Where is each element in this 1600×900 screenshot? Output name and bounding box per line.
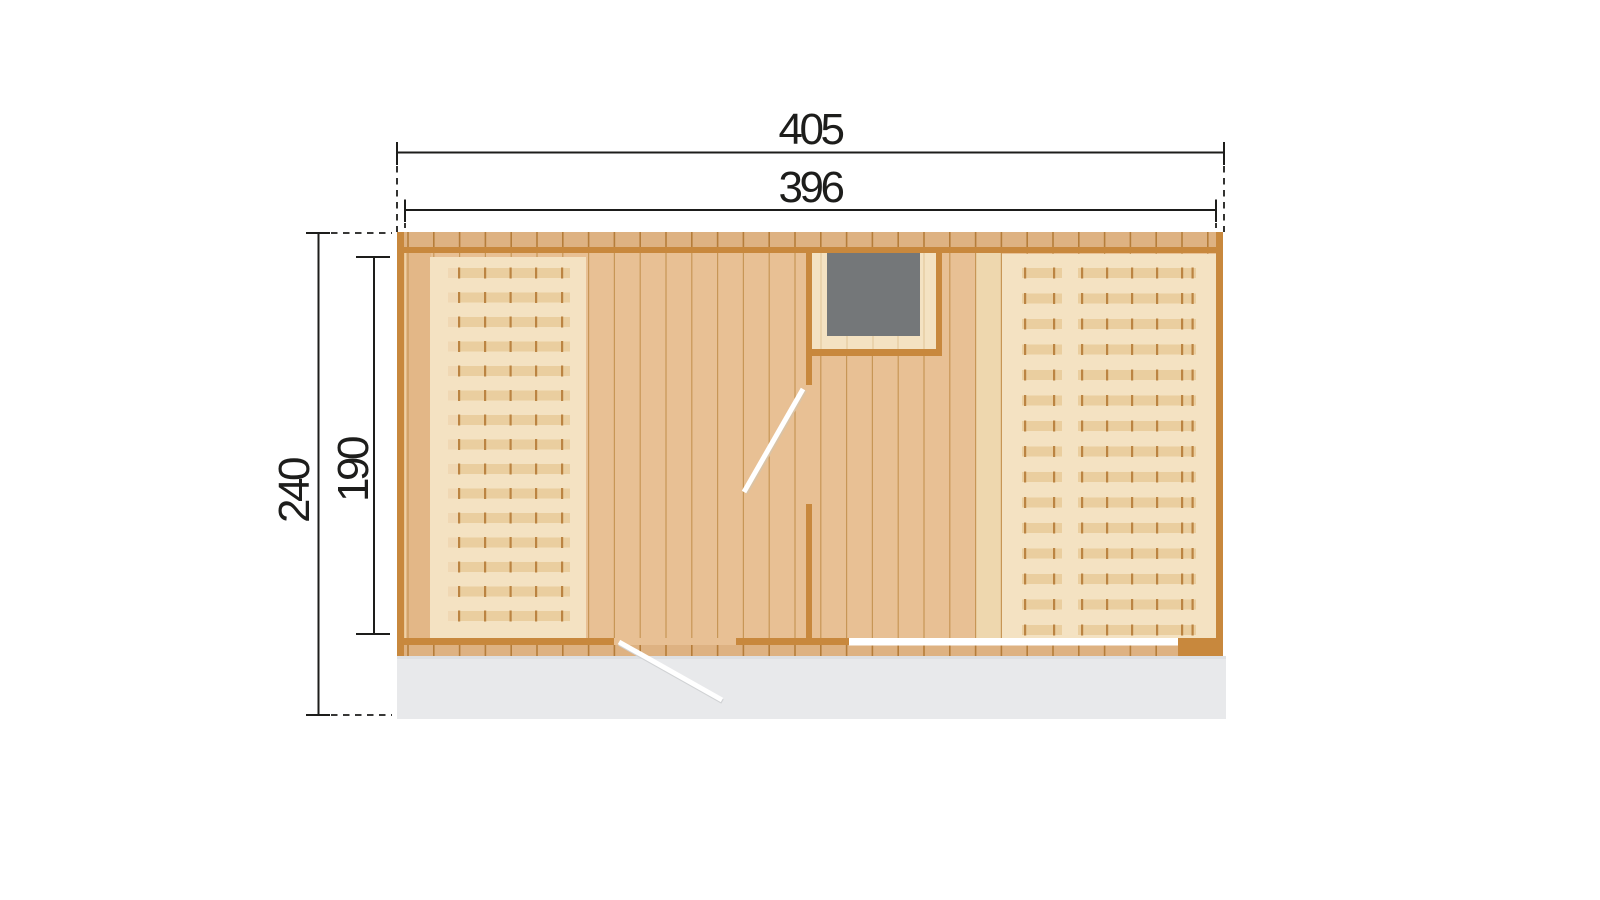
svg-text:190: 190	[329, 437, 378, 502]
svg-text:405: 405	[779, 105, 844, 154]
svg-text:396: 396	[779, 163, 844, 212]
svg-text:240: 240	[270, 458, 319, 523]
